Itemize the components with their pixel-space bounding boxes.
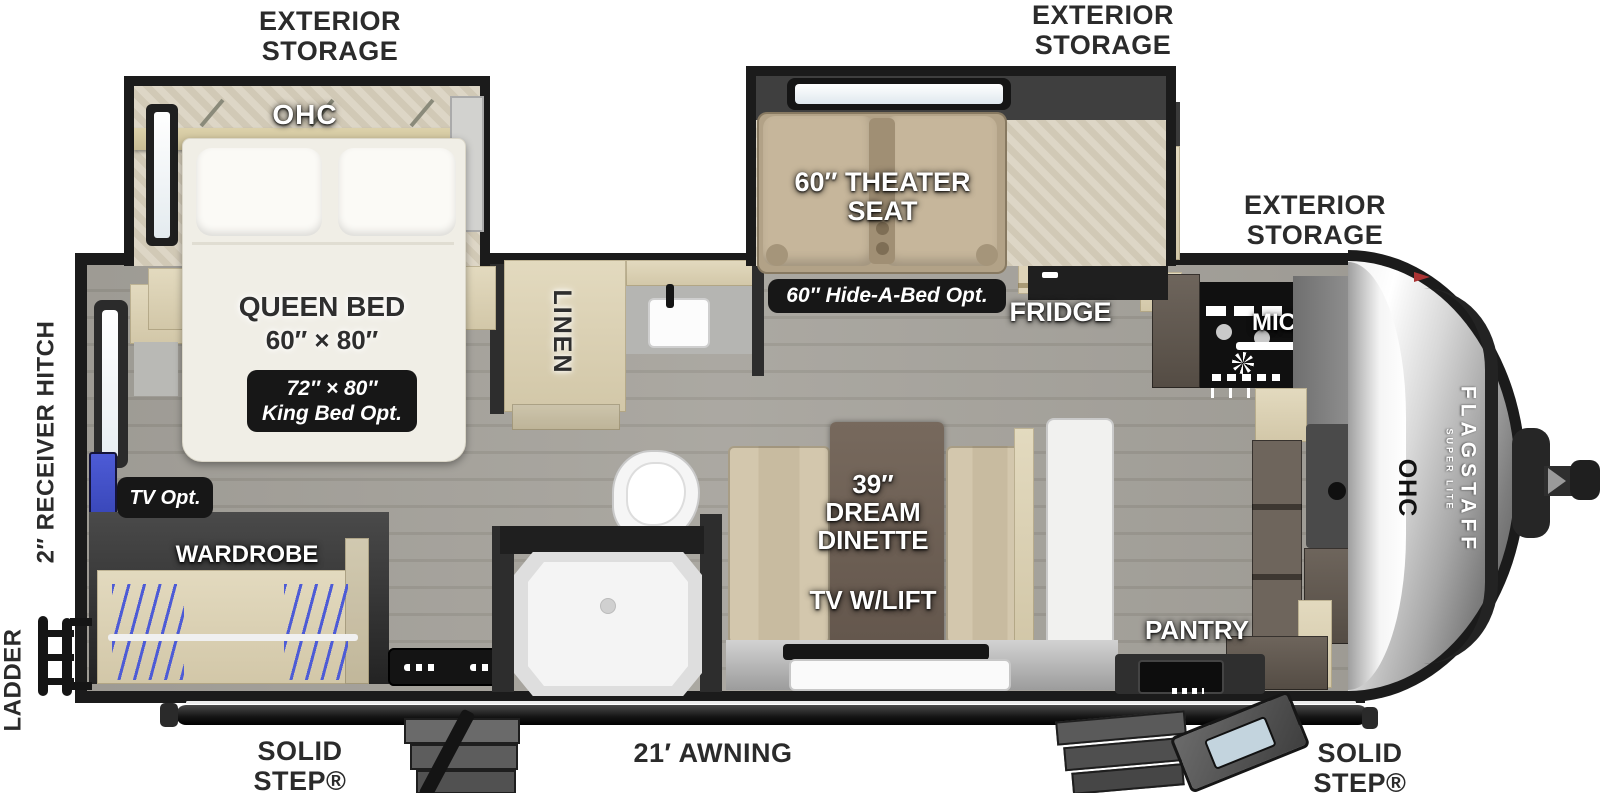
wardrobe-end-panel: [345, 538, 369, 684]
fridge-label: FRIDGE: [1003, 298, 1118, 327]
bath-faucet: [666, 284, 674, 308]
solid-step-rear-label: SOLID STEP® ENTRY: [210, 736, 390, 793]
ladder-rung-3: [40, 678, 74, 685]
bath-sink: [648, 298, 710, 348]
pillow-right: [338, 148, 456, 236]
linen-label: LINEN: [547, 290, 575, 375]
receiver-hitch-label: 2″ RECEIVER HITCH: [34, 321, 61, 564]
left-entry-mat-dots2: [470, 664, 494, 671]
armrest-left: [766, 244, 788, 266]
vanity-wood-top: [626, 260, 760, 286]
ladder-hook-bottom: [70, 682, 92, 690]
lift-tv: [783, 644, 989, 660]
brand-mark: FLAGSTAFF SUPER LITE: [1445, 386, 1480, 554]
solid-step-front-label: SOLID STEP® ENTRY: [1270, 738, 1450, 793]
nightstand-right: [462, 266, 496, 330]
bed-seam: [192, 242, 454, 245]
brand-sub: SUPER LITE: [1445, 386, 1455, 554]
queen-bed-title: QUEEN BED: [222, 292, 422, 323]
nightstand-left: [148, 268, 184, 330]
exterior-storage-mid-label: EXTERIOR STORAGE: [1003, 0, 1203, 60]
tv-option-badge: TV Opt.: [117, 477, 213, 518]
king-option-text: King Bed Opt.: [247, 401, 417, 426]
shower-back-wall: [500, 526, 704, 554]
brand-name: FLAGSTAFF: [1456, 386, 1480, 554]
hanger-group-right: [284, 584, 348, 680]
awning-highlight: [186, 701, 1356, 704]
bath-wall-right: [752, 264, 764, 376]
pantry-cabinet: [1252, 440, 1302, 644]
ladder-label: LADDER: [1, 629, 28, 732]
bed-slide-window-glass: [154, 112, 170, 238]
pillow-left: [196, 148, 322, 236]
brand-flag-icon: [1414, 272, 1430, 282]
rear-window-glass: [102, 310, 118, 458]
left-entry-mat-dots: [404, 664, 438, 671]
pantry-label: PANTRY: [1134, 616, 1260, 644]
cooktop-dashes: [1212, 374, 1280, 381]
awning-end-cap-left: [160, 703, 178, 727]
theater-window-glass: [795, 84, 1003, 104]
shower-drain: [600, 598, 616, 614]
floorplan-canvas: WARDROBE TV Opt. LINEN 39″ DREAM DINETTE…: [0, 0, 1600, 793]
exterior-storage-rear-label: EXTERIOR STORAGE: [230, 6, 430, 66]
exterior-storage-front-label: EXTERIOR STORAGE: [1215, 190, 1415, 250]
sink-dots: [1172, 688, 1204, 694]
shower-pan-inner: [528, 562, 688, 686]
king-bed-option-badge: 72″ × 80″ King Bed Opt.: [247, 370, 417, 432]
awning-end-cap-right: [1362, 707, 1378, 729]
hide-a-bed-badge: 60″ Hide-A-Bed Opt.: [768, 279, 1006, 313]
ladder-hook-top: [70, 618, 92, 626]
fridge-handle: [1042, 272, 1058, 278]
front-ohc-label: OHC: [1392, 459, 1420, 518]
dinette-label: 39″ DREAM DINETTE: [812, 470, 934, 554]
armrest-right: [976, 244, 998, 266]
hitch-coupler: [1570, 460, 1600, 500]
awning-bar: [176, 705, 1368, 725]
left-steps-step2: [410, 744, 518, 770]
tv-lift-label: TV W/LIFT: [793, 586, 953, 614]
kitchen-base-wood: [1255, 388, 1307, 442]
wardrobe-label: WARDROBE: [167, 542, 327, 568]
ladder-rung-2: [40, 654, 74, 661]
hide-a-bed-label: 60″ Hide-A-Bed Opt.: [768, 283, 1006, 308]
ohc-label: OHC: [260, 100, 350, 130]
front-tv-speaker: [1328, 482, 1346, 500]
wardrobe-rod: [108, 634, 358, 641]
awning-label: 21′ AWNING: [613, 738, 813, 768]
linen-drawer: [512, 404, 620, 430]
entry-door-window: [1204, 716, 1277, 770]
rear-tv-stand: [134, 342, 178, 396]
queen-bed-size: 60″ × 80″: [222, 326, 422, 355]
cooktop-knob-1: [1216, 324, 1232, 340]
hanger-group-left: [112, 584, 184, 680]
dinette-post: [1014, 428, 1034, 646]
ladder-rung-1: [40, 630, 74, 637]
king-option-size: 72″ × 80″: [247, 376, 417, 401]
tv-lift-cabinet: [1046, 418, 1114, 656]
lift-soundbar: [789, 659, 1011, 691]
cupholder-2: [876, 242, 889, 255]
burner-icon: [1232, 352, 1254, 374]
theater-seat-label: 60″ THEATER SEAT: [775, 168, 990, 226]
tv-option-label: TV Opt.: [117, 486, 213, 510]
